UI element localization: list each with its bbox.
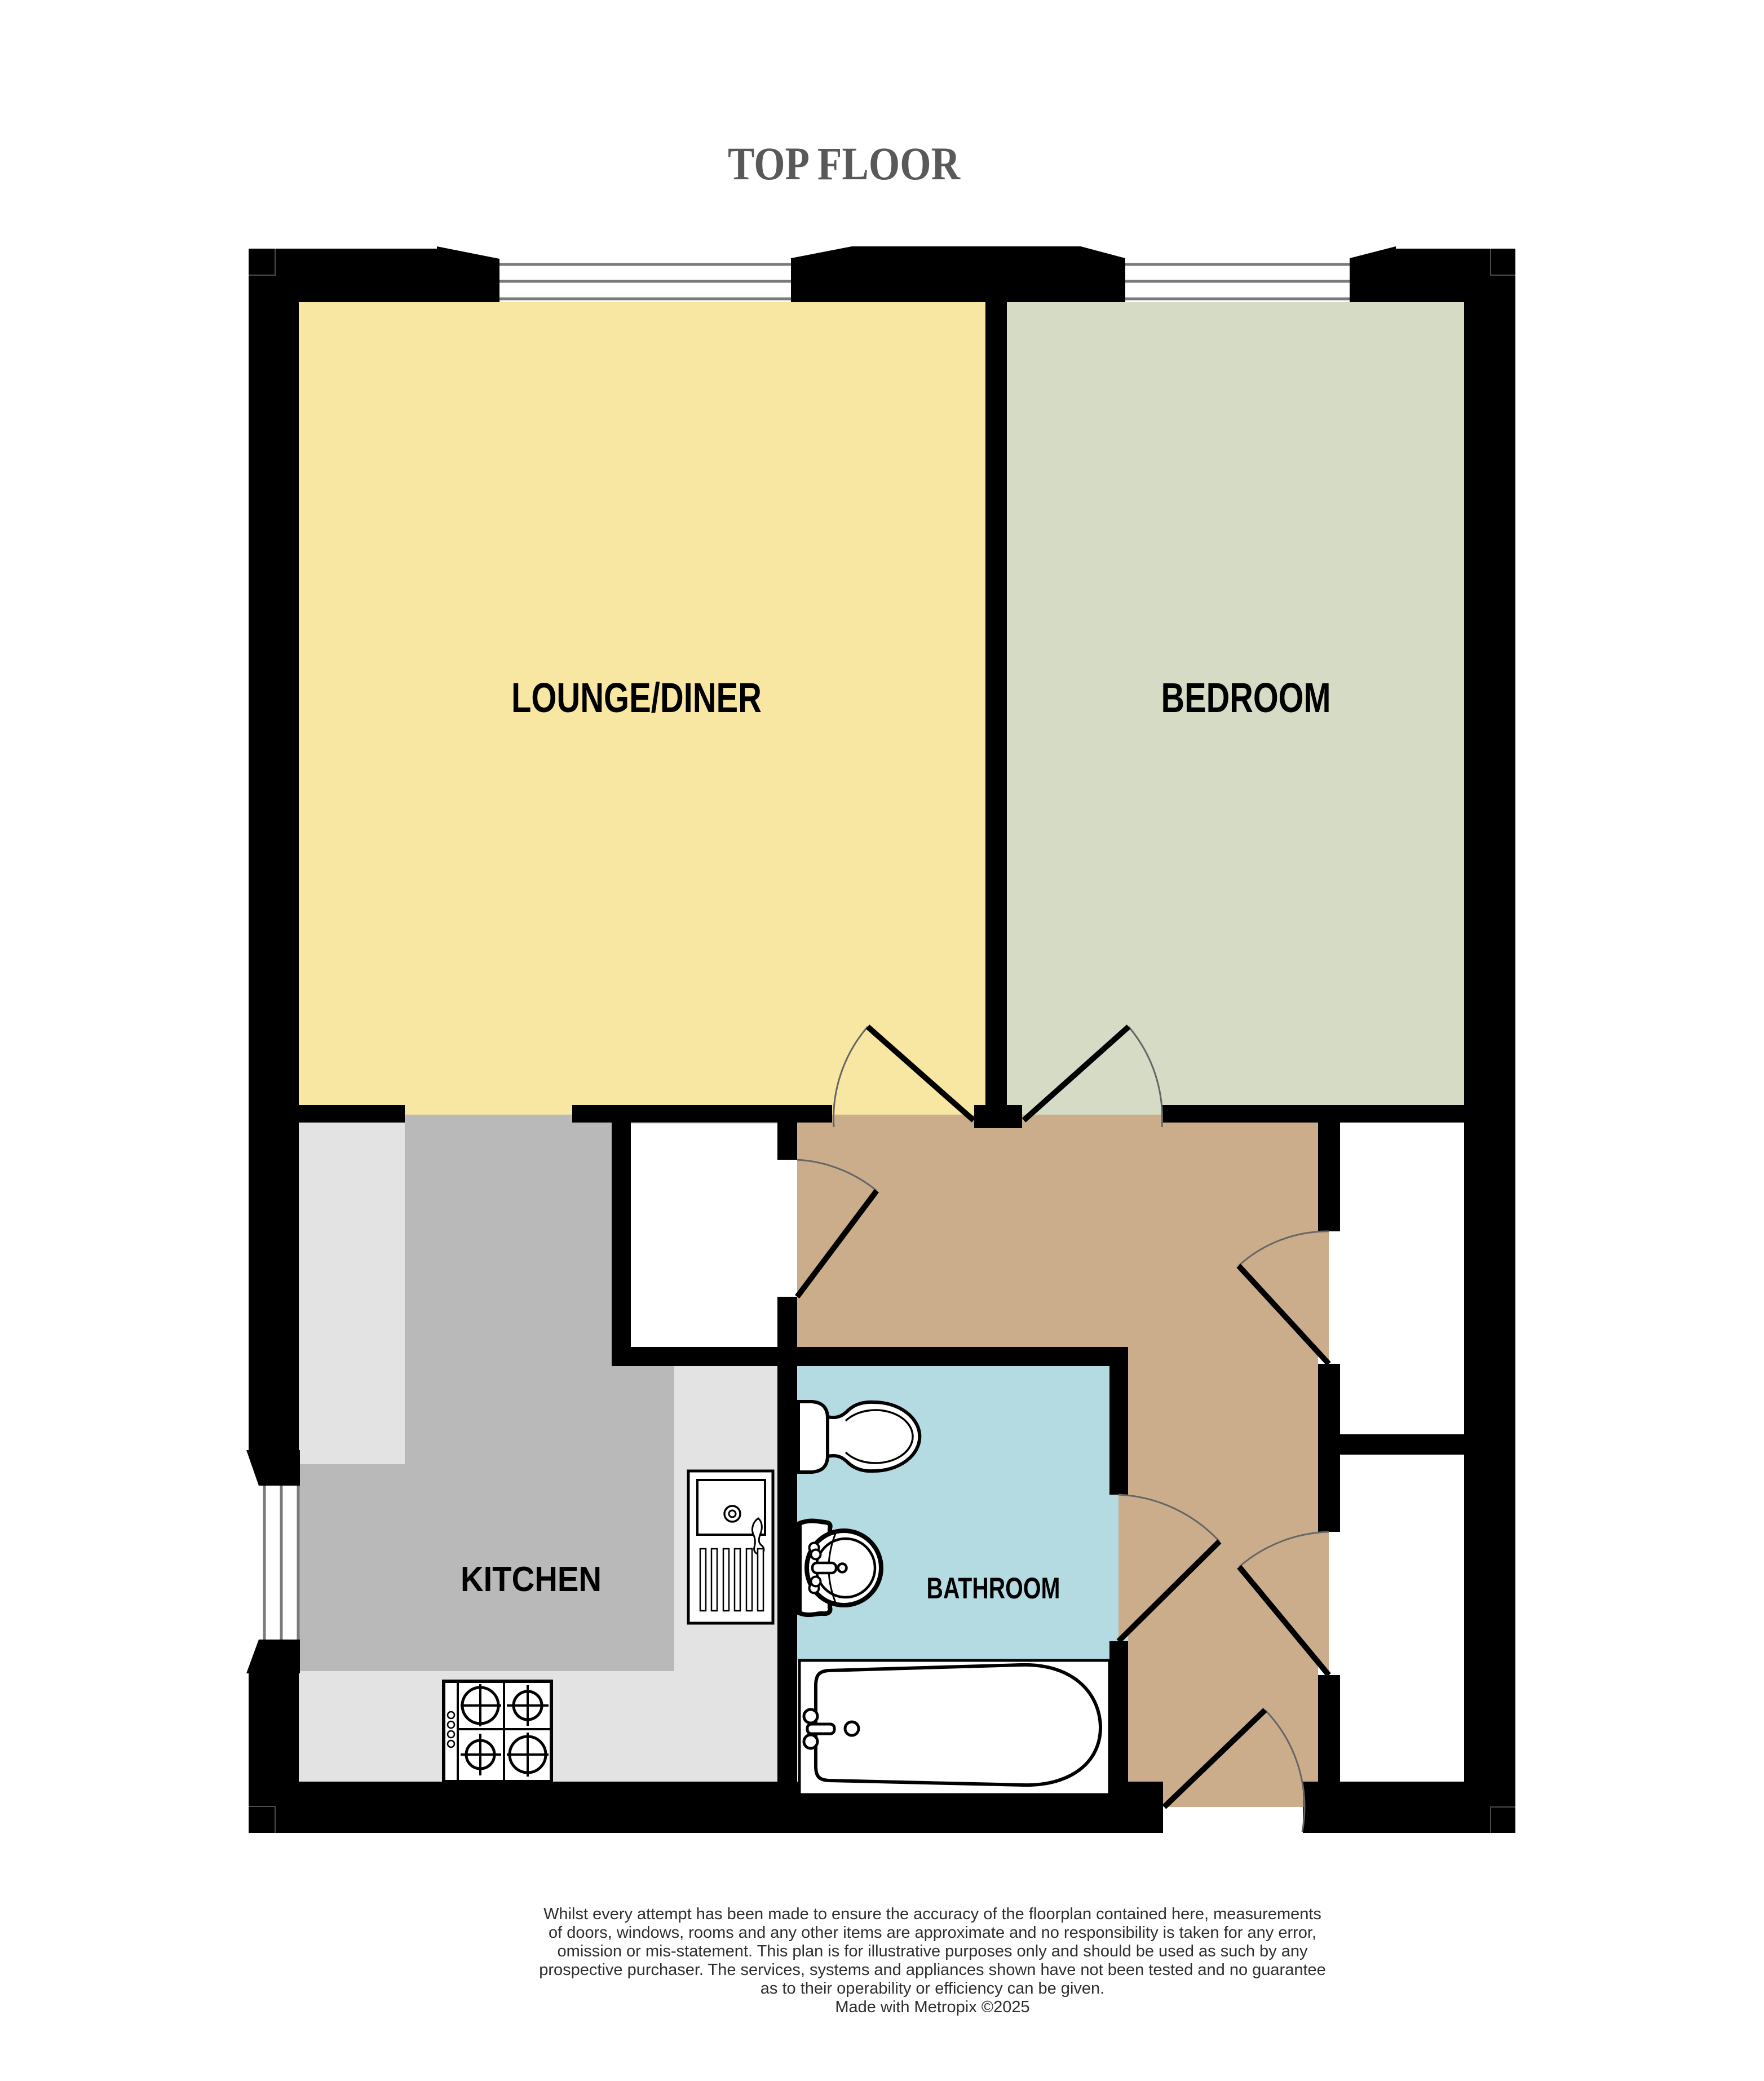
svg-text:prospective purchaser. The ser: prospective purchaser. The services, sys…: [539, 1961, 1326, 1979]
svg-text:BATHROOM: BATHROOM: [927, 1572, 1060, 1605]
svg-text:Whilst every attempt has been: Whilst every attempt has been made to en…: [543, 1905, 1321, 1923]
svg-text:of doors, windows, rooms and a: of doors, windows, rooms and any other i…: [549, 1924, 1316, 1942]
svg-text:omission or mis-statement. Thi: omission or mis-statement. This plan is …: [558, 1942, 1308, 1960]
svg-text:BEDROOM: BEDROOM: [1161, 674, 1331, 721]
svg-text:Made with Metropix ©2025: Made with Metropix ©2025: [835, 1998, 1029, 2016]
svg-text:LOUNGE/DINER: LOUNGE/DINER: [511, 674, 762, 721]
svg-text:as to their operability or eff: as to their operability or efficiency ca…: [761, 1980, 1104, 1998]
svg-text:TOP FLOOR: TOP FLOOR: [728, 138, 961, 189]
svg-text:KITCHEN: KITCHEN: [461, 1560, 602, 1599]
